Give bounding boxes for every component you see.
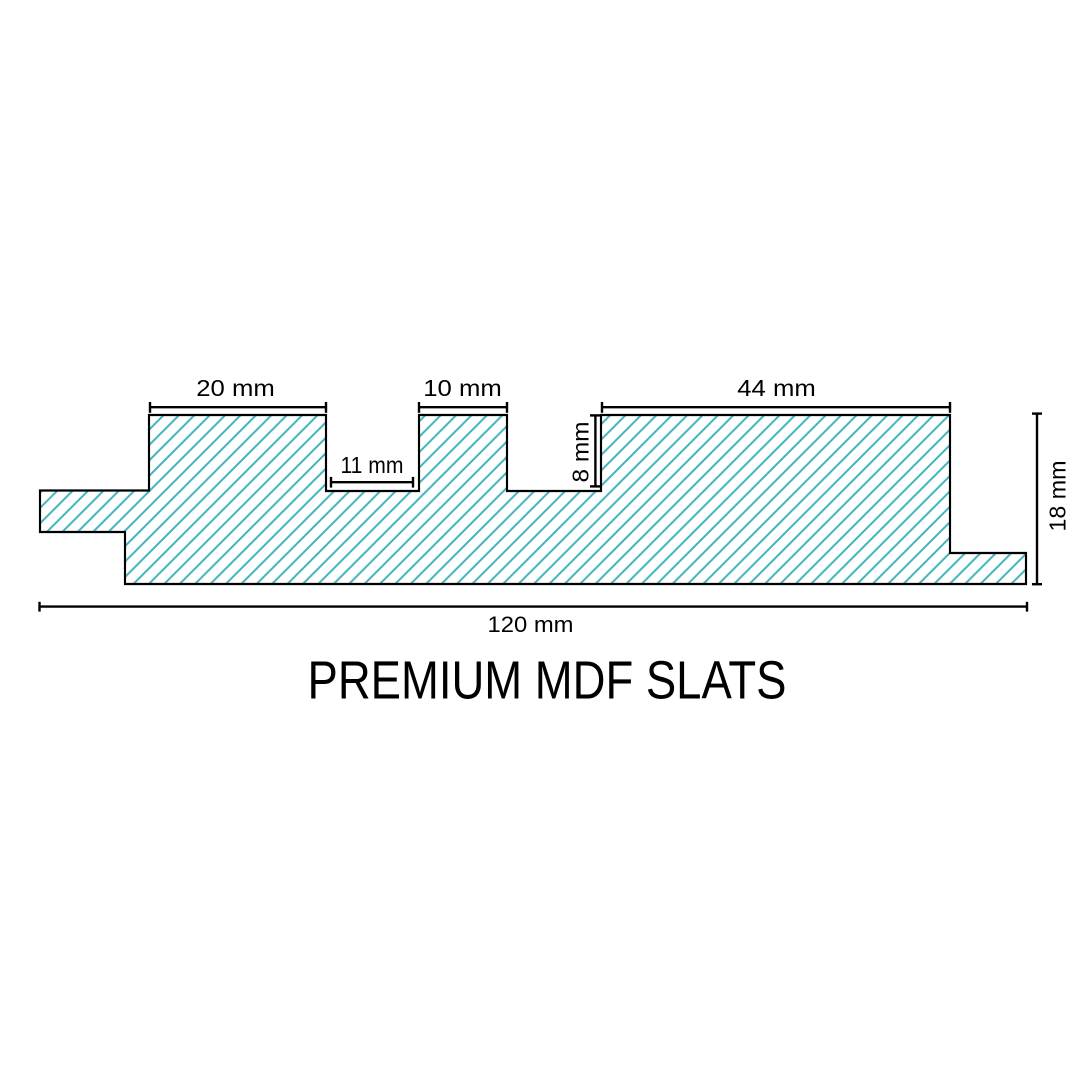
svg-text:10 mm: 10 mm	[423, 375, 502, 401]
svg-text:18 mm: 18 mm	[1045, 461, 1071, 532]
svg-text:44 mm: 44 mm	[737, 375, 816, 401]
svg-text:120 mm: 120 mm	[488, 612, 574, 637]
svg-text:PREMIUM MDF SLATS: PREMIUM MDF SLATS	[308, 652, 787, 711]
svg-text:20 mm: 20 mm	[196, 375, 275, 401]
svg-text:11 mm: 11 mm	[341, 452, 404, 478]
svg-text:8 mm: 8 mm	[568, 422, 594, 483]
